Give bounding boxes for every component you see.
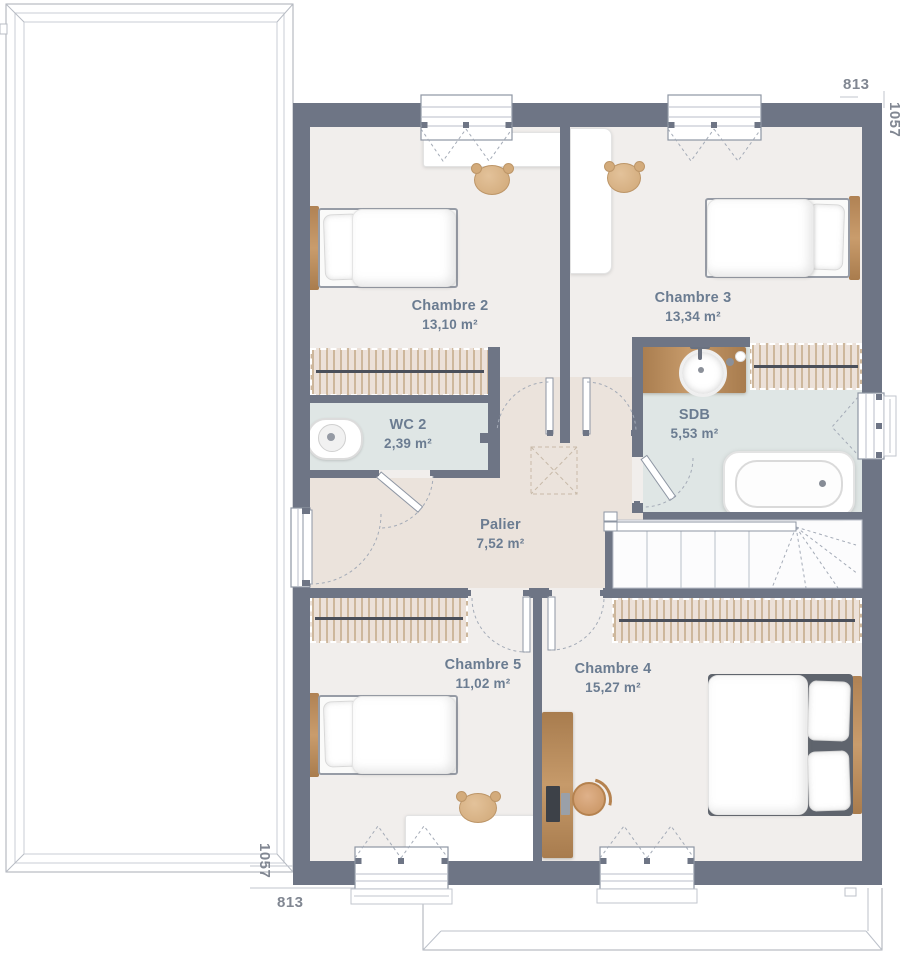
room-area: 13,34 m² <box>618 308 768 326</box>
room-name: Chambre 5 <box>408 656 558 675</box>
door-sdb <box>634 450 693 507</box>
dimension-top-width: 813 <box>843 76 870 93</box>
room-name: Chambre 3 <box>618 289 768 308</box>
window-top-chambre2 <box>421 95 512 161</box>
room-label-sdb: SDB 5,53 m² <box>632 406 757 442</box>
stair-newel <box>604 522 617 531</box>
room-label-chambre5: Chambre 5 11,02 m² <box>408 656 558 692</box>
stair-newel <box>604 512 617 521</box>
floor-plan: Chambre 2 13,10 m² Chambre 3 13,34 m² WC… <box>0 0 909 960</box>
window-door-palier-left <box>291 508 381 587</box>
room-area: 11,02 m² <box>408 675 558 693</box>
window-bottom-chambre5 <box>351 826 452 904</box>
room-area: 5,53 m² <box>632 425 757 443</box>
room-area: 13,10 m² <box>375 316 525 334</box>
window-sdb-right <box>832 393 896 459</box>
room-name: Chambre 4 <box>538 660 688 679</box>
room-name: SDB <box>632 406 757 425</box>
door-wc2 <box>373 470 436 528</box>
window-top-chambre3 <box>668 95 761 161</box>
room-label-chambre2: Chambre 2 13,10 m² <box>375 297 525 333</box>
room-area: 2,39 m² <box>348 435 468 453</box>
room-area: 7,52 m² <box>428 535 573 553</box>
dimension-bottom-width: 813 <box>277 894 304 911</box>
room-label-chambre3: Chambre 3 13,34 m² <box>618 289 768 325</box>
plan-linework <box>0 0 909 960</box>
door-chambre4 <box>546 590 606 650</box>
stair-handrail <box>616 522 796 531</box>
door-chambre5 <box>465 590 530 652</box>
door-chambre2 <box>494 378 553 436</box>
room-name: WC 2 <box>348 416 468 435</box>
room-label-wc2: WC 2 2,39 m² <box>348 416 468 452</box>
window-bottom-chambre4 <box>597 826 697 903</box>
room-name: Chambre 2 <box>375 297 525 316</box>
door-chambre3 <box>583 378 637 436</box>
room-area: 15,27 m² <box>538 679 688 697</box>
staircase <box>604 512 862 588</box>
skylight-hatch-box <box>531 447 577 494</box>
room-name: Palier <box>428 516 573 535</box>
dimension-left-height: 1057 <box>256 843 273 878</box>
dimension-right-height: 1057 <box>886 102 903 137</box>
room-label-palier: Palier 7,52 m² <box>428 516 573 552</box>
room-label-chambre4: Chambre 4 15,27 m² <box>538 660 688 696</box>
